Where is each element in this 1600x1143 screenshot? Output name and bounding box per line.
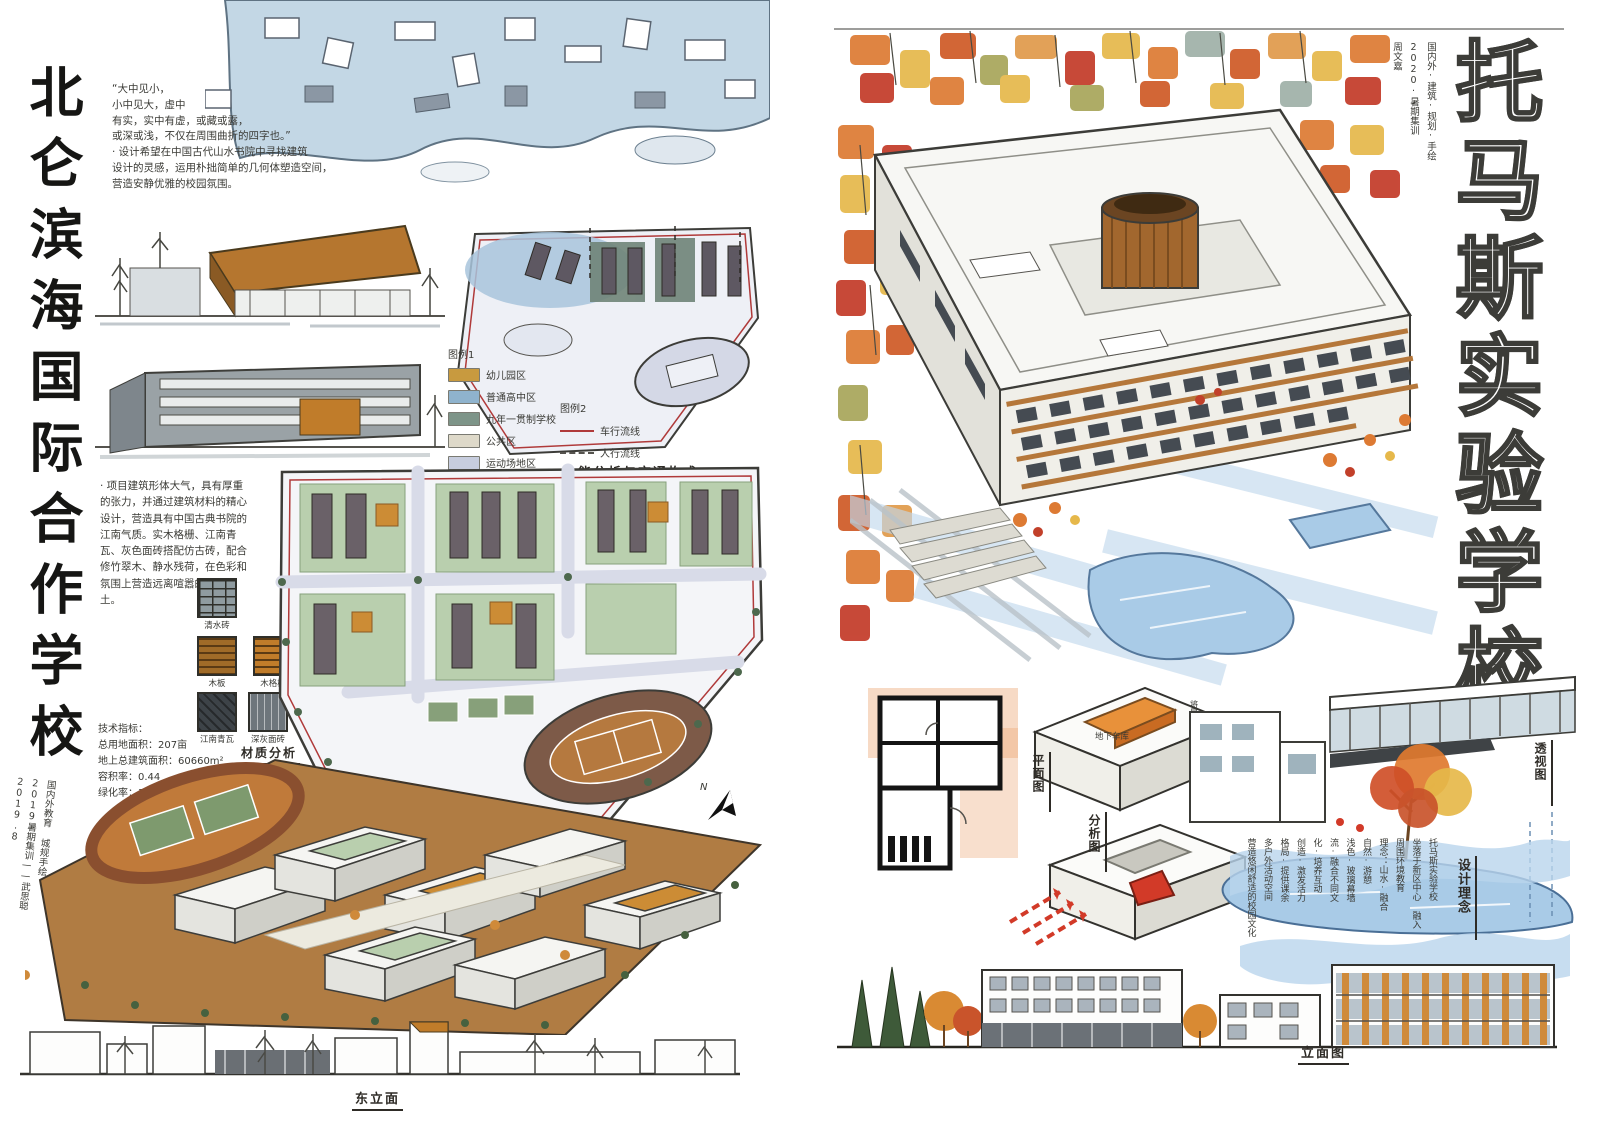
quote-text: “大中见小， 小中见大，虚中 有实，实中有虚，或藏或露， 或深或浅，不仅在周围曲… <box>112 82 362 192</box>
aerial-axonometric-rendering <box>25 705 765 1035</box>
legend-item: 公共区 <box>448 433 568 448</box>
legend-2: 图例2 车行流线 人行流线 <box>560 400 690 467</box>
legend-item: 普通高中区 <box>448 389 568 404</box>
main-perspective-rendering <box>850 100 1440 700</box>
plan-diagram-caption: 平面图 <box>1030 752 1051 812</box>
credit-text: 国内外·建筑·规划·手绘 2020·暑期集训 周文嘉 <box>1388 42 1439 222</box>
legend2-title: 图例2 <box>560 400 690 415</box>
legend-item: 车行流线 <box>560 423 690 438</box>
pedestrian-flow-line <box>560 452 594 454</box>
school-building <box>875 110 1423 505</box>
east-elevation-drawing <box>15 1000 745 1088</box>
basement-note: 地下车库 <box>1095 730 1129 742</box>
legend-swatch <box>448 434 480 448</box>
legend-swatch <box>448 368 480 382</box>
legend-1: 图例1 幼儿园区 普通高中区 九年一贯制学校 公共区 运动场地区 <box>448 346 568 477</box>
left-sheet: 北仑滨海国际合作学校 “大中见小， 小中见大，虚中 有实，实中有虚，或藏或露， … <box>0 0 790 1143</box>
legend-swatch <box>448 390 480 404</box>
material-swatch-cell: 清水砖 <box>197 578 237 631</box>
main-elevation-drawing <box>832 925 1562 1067</box>
perspective-caption: 透视图 <box>1532 740 1553 806</box>
scanned-presentation-boards: { "left_sheet": { "title": "北仑滨海国际合作学校",… <box>0 0 1600 1143</box>
rooftop-cylinder <box>1102 193 1198 288</box>
material-swatch-cell: 木板 <box>197 636 237 689</box>
material-swatch <box>197 636 237 676</box>
main-elevation-caption: 立面图 <box>1298 1042 1349 1065</box>
legend-item: 幼儿园区 <box>448 367 568 382</box>
legend-item: 人行流线 <box>560 445 690 460</box>
material-swatch <box>197 578 237 618</box>
right-sheet: 国内外·建筑·规划·手绘 2020·暑期集训 周文嘉 托马斯实验学校 <box>790 0 1600 1143</box>
legend-item: 九年一贯制学校 <box>448 411 568 426</box>
perspective-sketch-teaching-block <box>90 335 450 470</box>
car-flow-line <box>560 430 594 432</box>
legend-swatch <box>448 412 480 426</box>
analysis-diagram-caption: 分析图 <box>1086 812 1107 872</box>
legend1-title: 图例1 <box>448 346 568 361</box>
bw-plan-drawing <box>868 688 1018 888</box>
right-board-title: 托马斯实验学校 <box>1446 36 1534 748</box>
board-frame-line <box>834 28 1564 30</box>
east-elevation-caption: 东立面 <box>352 1088 403 1111</box>
perspective-sketch-gatehouse <box>90 198 450 333</box>
left-board-title: 北仑滨海国际合作学校 <box>24 64 78 814</box>
